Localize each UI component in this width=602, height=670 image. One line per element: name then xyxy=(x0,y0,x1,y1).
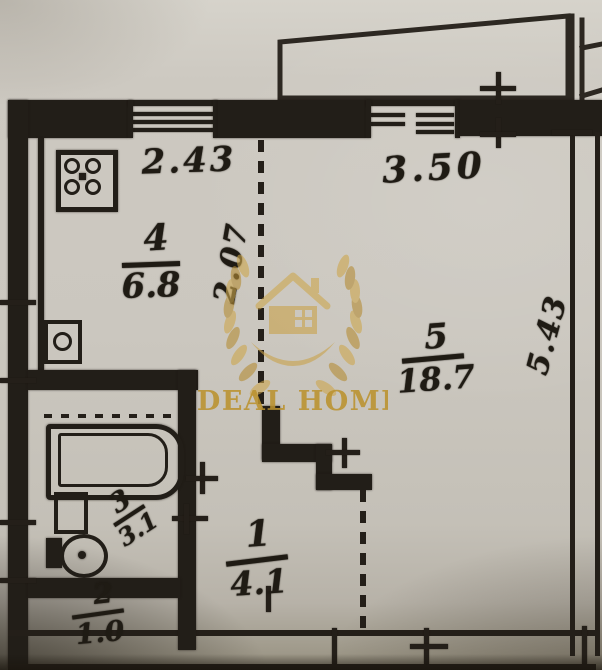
kitchen-window-icon xyxy=(128,100,218,140)
partition-hall-living-dashed xyxy=(360,490,366,632)
toilet-dot xyxy=(78,551,86,559)
room-living-number: 5 xyxy=(415,319,457,356)
window-line xyxy=(132,112,214,116)
window-line xyxy=(416,130,454,134)
stove-icon xyxy=(56,150,118,212)
room-living-area: 18.7 xyxy=(393,360,479,398)
dimension-tick xyxy=(0,300,36,305)
dimension-tick xyxy=(480,86,516,91)
room-hall-number: 1 xyxy=(239,515,277,553)
stove-center-dot xyxy=(79,173,86,180)
stove-burner xyxy=(85,179,101,195)
window-line xyxy=(416,122,454,126)
bath-door-dashed-line xyxy=(44,414,180,418)
kitchen-sink-icon xyxy=(44,320,82,364)
wall-top-middle xyxy=(218,100,366,138)
window-jamb xyxy=(128,100,133,138)
bath-top-wall xyxy=(28,370,198,390)
dimension-tick xyxy=(0,578,36,583)
stove-burner xyxy=(85,158,101,174)
dimension-tick xyxy=(184,504,189,534)
partition-step-h2 xyxy=(316,474,372,490)
stove-burner xyxy=(64,179,80,195)
dimension-tick xyxy=(326,450,360,455)
hand-icon xyxy=(251,342,335,366)
stove-burner xyxy=(64,158,80,174)
watermark-brand-text: IDEAL HOME xyxy=(198,386,388,417)
dimension-tick xyxy=(480,132,516,137)
window-line xyxy=(371,122,405,126)
dimension-tick xyxy=(410,644,448,649)
dim-kitchen-width: 2.43 xyxy=(133,142,244,180)
floorplan-photo: 2.43 2.07 3.50 5.43 4 6.8 5 18.7 3 3.1 2… xyxy=(0,0,602,670)
watermark-logo: IDEAL HOME xyxy=(198,238,388,418)
window-line xyxy=(366,100,460,106)
laurel-right xyxy=(313,253,364,399)
house-icon xyxy=(259,276,327,334)
room-wc-area: 1.0 xyxy=(69,616,131,649)
room-hall-area: 4.1 xyxy=(221,563,297,601)
room-kitchen-number: 4 xyxy=(133,219,179,257)
kitchen-sink-basin xyxy=(53,332,72,351)
dim-living-width: 3.50 xyxy=(371,147,497,189)
window-jamb xyxy=(366,100,371,138)
dimension-tick xyxy=(186,476,218,481)
window-line xyxy=(128,100,218,106)
wall-right xyxy=(570,132,600,656)
room-kitchen-area: 6.8 xyxy=(117,268,184,304)
photo-shadow xyxy=(0,654,602,670)
window-line xyxy=(132,120,214,124)
living-window-icon xyxy=(366,100,460,140)
dimension-tick xyxy=(552,130,592,135)
room-wc-number: 2 xyxy=(85,578,122,609)
window-line xyxy=(371,113,405,117)
dimension-tick xyxy=(0,378,36,383)
dimension-tick xyxy=(0,520,36,525)
laurel-left xyxy=(222,253,273,399)
window-line xyxy=(132,128,214,132)
window-line xyxy=(416,113,454,117)
